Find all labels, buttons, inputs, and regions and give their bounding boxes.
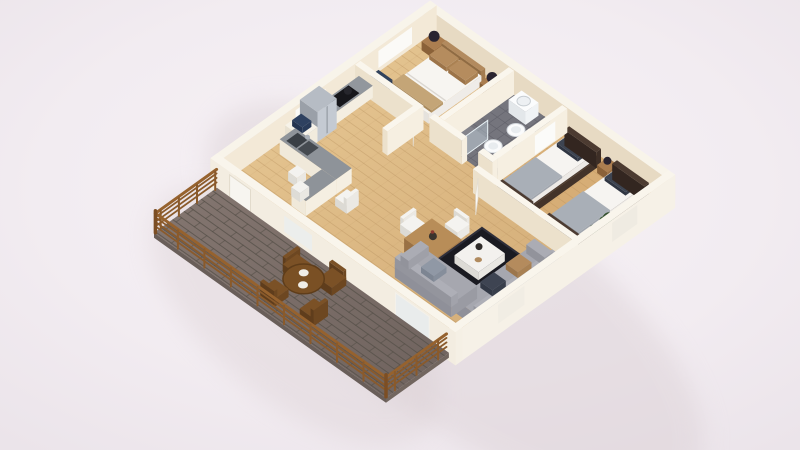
wall-kitchen-stub-face-sw xyxy=(382,128,387,156)
deck-chair-southeast-back-face-sw xyxy=(311,308,314,324)
white-chair-back-face-sw xyxy=(344,197,347,212)
bar-faucet xyxy=(305,135,310,140)
wall-southwest-face-se xyxy=(455,328,462,366)
deck-plate-1 xyxy=(299,269,309,276)
sink-basin xyxy=(517,96,530,106)
bedroom2-lamp xyxy=(603,157,611,165)
coffee-table-item-1 xyxy=(476,243,483,250)
cooking-pot xyxy=(344,87,352,95)
deck-plate-2 xyxy=(298,281,308,288)
floor-plan-3d-render: Isometric 3D rendering of an apartment f… xyxy=(0,0,800,450)
deck-table xyxy=(283,264,324,294)
toilet2-seat xyxy=(488,142,498,149)
screenshot-root: Isometric 3D rendering of an apartment f… xyxy=(0,0,800,450)
toilet1-seat xyxy=(511,126,521,133)
wall-hallway-b-face-se xyxy=(462,137,467,165)
centerpiece-accent xyxy=(431,230,435,234)
lamp-left xyxy=(429,31,440,42)
fridge-seam xyxy=(327,106,328,134)
coffee-table-item-2 xyxy=(475,257,482,262)
